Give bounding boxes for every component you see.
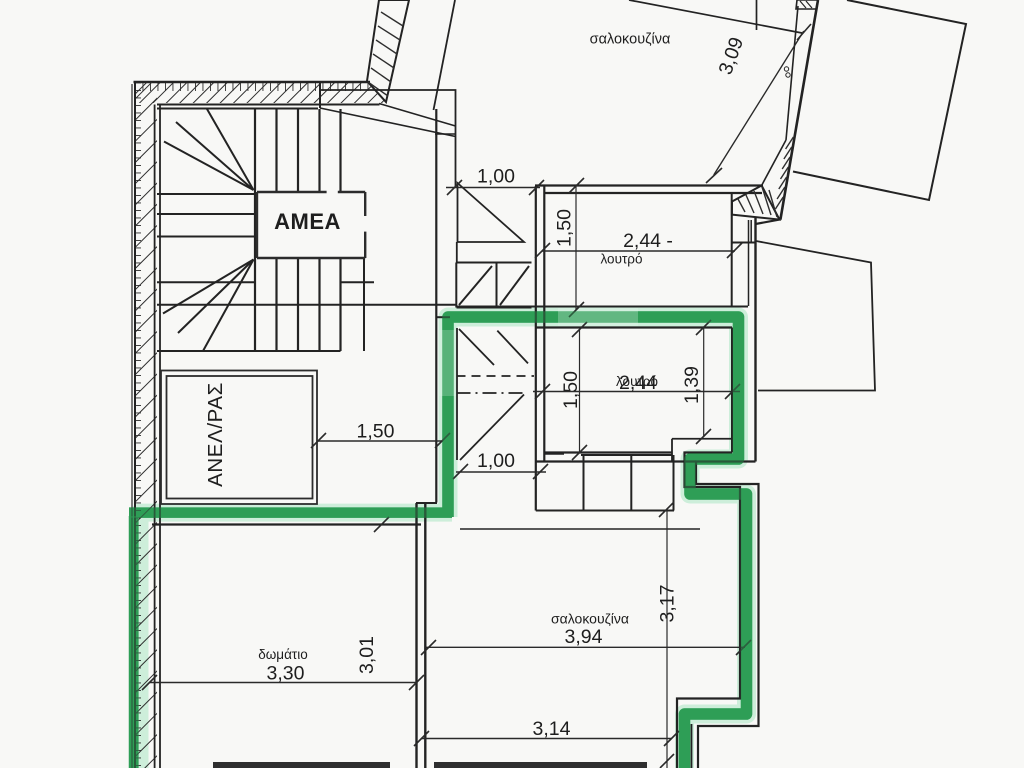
svg-text:δωμάτιο: δωμάτιο xyxy=(258,647,307,662)
svg-text:2,44 -: 2,44 - xyxy=(623,230,673,252)
svg-text:σαλοκουζίνα: σαλοκουζίνα xyxy=(551,611,629,627)
svg-text:AMEA: AMEA xyxy=(274,209,341,234)
svg-text:1,50: 1,50 xyxy=(357,421,395,443)
svg-text:3,17: 3,17 xyxy=(657,585,679,623)
svg-text:3,01: 3,01 xyxy=(356,636,378,674)
svg-text:λουτρό: λουτρό xyxy=(601,252,643,267)
svg-text:1,00: 1,00 xyxy=(477,166,515,188)
svg-text:λουτρό: λουτρό xyxy=(616,374,658,389)
svg-text:3,30: 3,30 xyxy=(267,663,305,685)
svg-text:1,50: 1,50 xyxy=(560,371,582,409)
svg-text:1,00: 1,00 xyxy=(477,450,515,472)
svg-text:σαλοκουζίνα: σαλοκουζίνα xyxy=(590,32,671,48)
svg-text:3,14: 3,14 xyxy=(533,718,571,740)
svg-text:3,94: 3,94 xyxy=(565,626,603,648)
svg-text:ΑΝΕΛ/ΡΑΣ: ΑΝΕΛ/ΡΑΣ xyxy=(204,382,227,487)
svg-text:1,39: 1,39 xyxy=(681,366,703,404)
svg-text:1,50: 1,50 xyxy=(554,209,576,247)
